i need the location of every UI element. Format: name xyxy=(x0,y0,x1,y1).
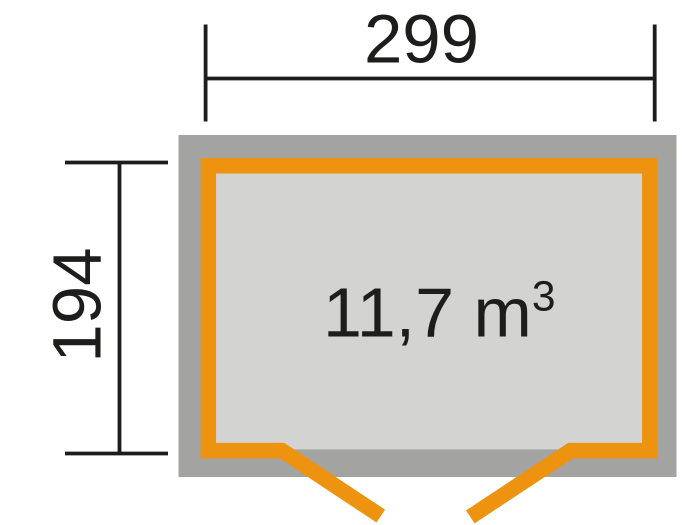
svg-text:299: 299 xyxy=(364,1,479,78)
svg-text:194: 194 xyxy=(38,247,115,362)
svg-text:11,7 m3: 11,7 m3 xyxy=(323,274,555,352)
